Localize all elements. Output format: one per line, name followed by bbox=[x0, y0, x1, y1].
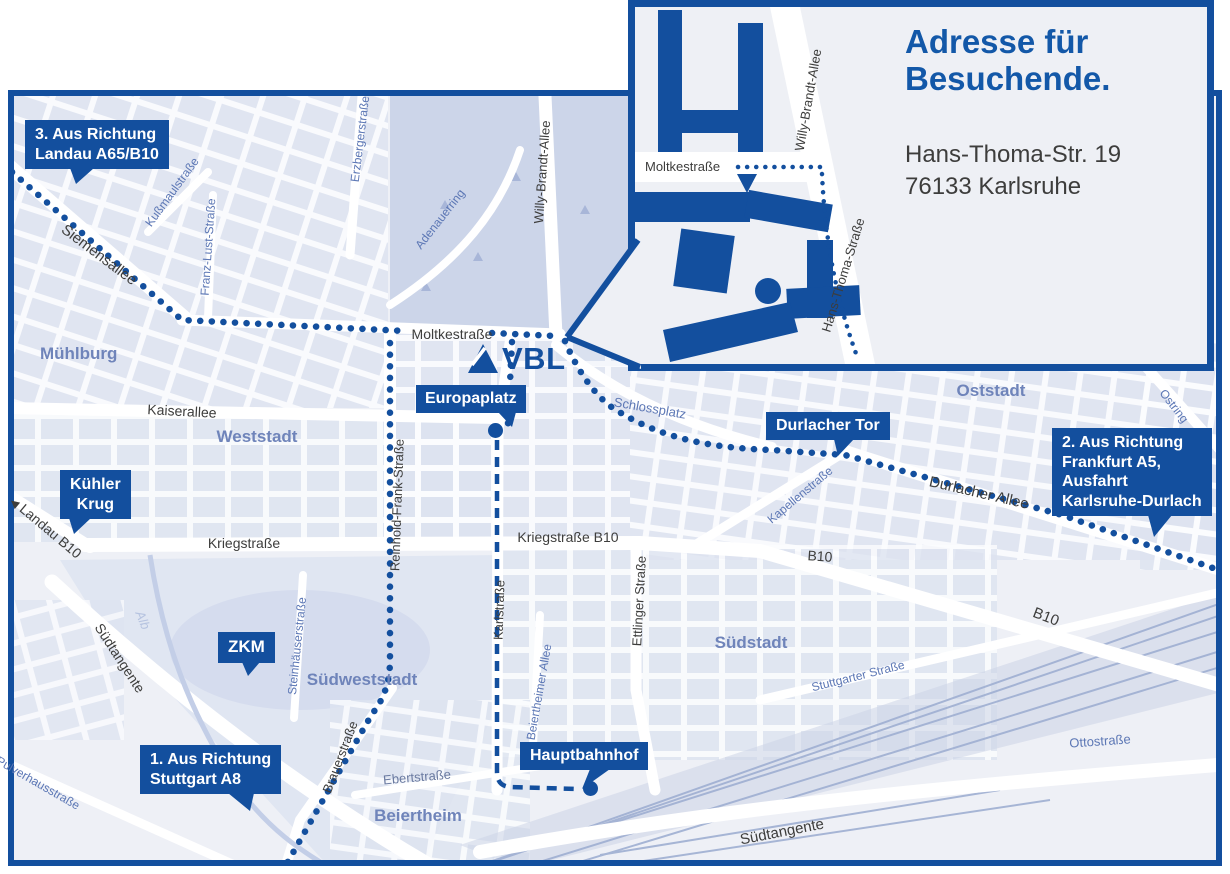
callout-pointer bbox=[69, 518, 93, 534]
vbl-logo: VBL bbox=[468, 342, 566, 374]
inset-heading: Adresse für Besuchende. bbox=[905, 23, 1110, 98]
park-area-schlossgarten bbox=[556, 96, 630, 366]
vbl-triangle-icon bbox=[468, 342, 500, 374]
callout-hauptbahnhof-label: Hauptbahnhof bbox=[530, 747, 638, 764]
vbl-logo-text: VBL bbox=[502, 343, 566, 374]
callout-stuttgart-label: 1. Aus Richtung Stuttgart A8 bbox=[150, 751, 271, 788]
callout-zkm: ZKM bbox=[218, 632, 275, 663]
callout-landau: 3. Aus Richtung Landau A65/B10 bbox=[25, 120, 169, 169]
callout-kuehler-krug-label: Kühler Krug bbox=[70, 476, 121, 513]
callout-europaplatz: Europaplatz bbox=[416, 385, 526, 413]
callout-pointer bbox=[1148, 515, 1174, 537]
callout-kuehler-krug: Kühler Krug bbox=[60, 470, 131, 519]
callout-landau-label: 3. Aus Richtung Landau A65/B10 bbox=[35, 126, 159, 163]
callout-pointer bbox=[242, 662, 262, 676]
callout-frankfurt: 2. Aus Richtung Frankfurt A5, Ausfahrt K… bbox=[1052, 428, 1212, 516]
callout-durlacher-tor-label: Durlacher Tor bbox=[776, 417, 880, 434]
inset-street-label-moltkestrasse: Moltkestraße bbox=[645, 159, 720, 174]
blocks-west-edge bbox=[14, 600, 124, 740]
europaplatz-marker-dot bbox=[488, 423, 503, 438]
hauptbahnhof-marker-dot bbox=[583, 781, 598, 796]
callout-pointer bbox=[228, 793, 256, 811]
callout-pointer bbox=[834, 439, 856, 456]
inset-address: Hans-Thoma-Str. 19 76133 Karlsruhe bbox=[905, 139, 1121, 204]
vbl-directions-map-page: Siemensallee Moltkestraße Kaiserallee Wi… bbox=[0, 0, 1230, 874]
callout-hauptbahnhof: Hauptbahnhof bbox=[520, 742, 648, 770]
callout-durlacher-tor: Durlacher Tor bbox=[766, 412, 890, 440]
inset-visitor-address-map: Moltkestraße Willy-Brandt-Allee Hans-Tho… bbox=[628, 0, 1214, 371]
callout-stuttgart: 1. Aus Richtung Stuttgart A8 bbox=[140, 745, 281, 794]
entrance-arrow-icon bbox=[737, 174, 757, 193]
park-area-north bbox=[390, 96, 556, 332]
callout-pointer bbox=[70, 168, 96, 184]
callout-zkm-label: ZKM bbox=[228, 637, 265, 656]
callout-frankfurt-label: 2. Aus Richtung Frankfurt A5, Ausfahrt K… bbox=[1062, 434, 1202, 510]
callout-europaplatz-label: Europaplatz bbox=[425, 390, 517, 407]
